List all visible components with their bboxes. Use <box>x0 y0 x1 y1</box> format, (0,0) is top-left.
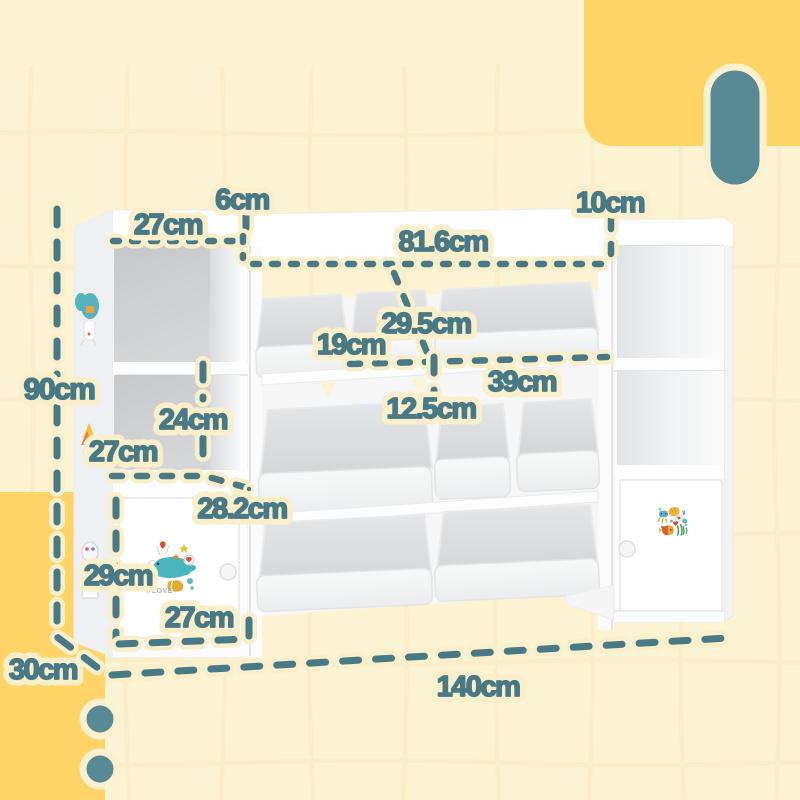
svg-text:27cm: 27cm <box>165 602 233 634</box>
svg-text:29cm: 29cm <box>84 560 152 592</box>
svg-text:27cm: 27cm <box>89 436 157 468</box>
svg-text:30cm: 30cm <box>9 654 77 686</box>
svg-text:81.6cm: 81.6cm <box>398 226 487 258</box>
svg-text:12.5cm: 12.5cm <box>386 393 475 425</box>
svg-text:39cm: 39cm <box>488 366 556 398</box>
svg-text:90cm: 90cm <box>24 373 95 406</box>
svg-text:140cm: 140cm <box>437 671 520 703</box>
svg-text:24cm: 24cm <box>159 404 227 436</box>
svg-text:19cm: 19cm <box>317 329 385 361</box>
svg-text:29.5cm: 29.5cm <box>381 308 470 340</box>
svg-text:6cm: 6cm <box>215 184 269 216</box>
svg-text:10cm: 10cm <box>576 187 644 219</box>
svg-text:27cm: 27cm <box>134 209 202 241</box>
svg-text:28.2cm: 28.2cm <box>197 493 286 525</box>
